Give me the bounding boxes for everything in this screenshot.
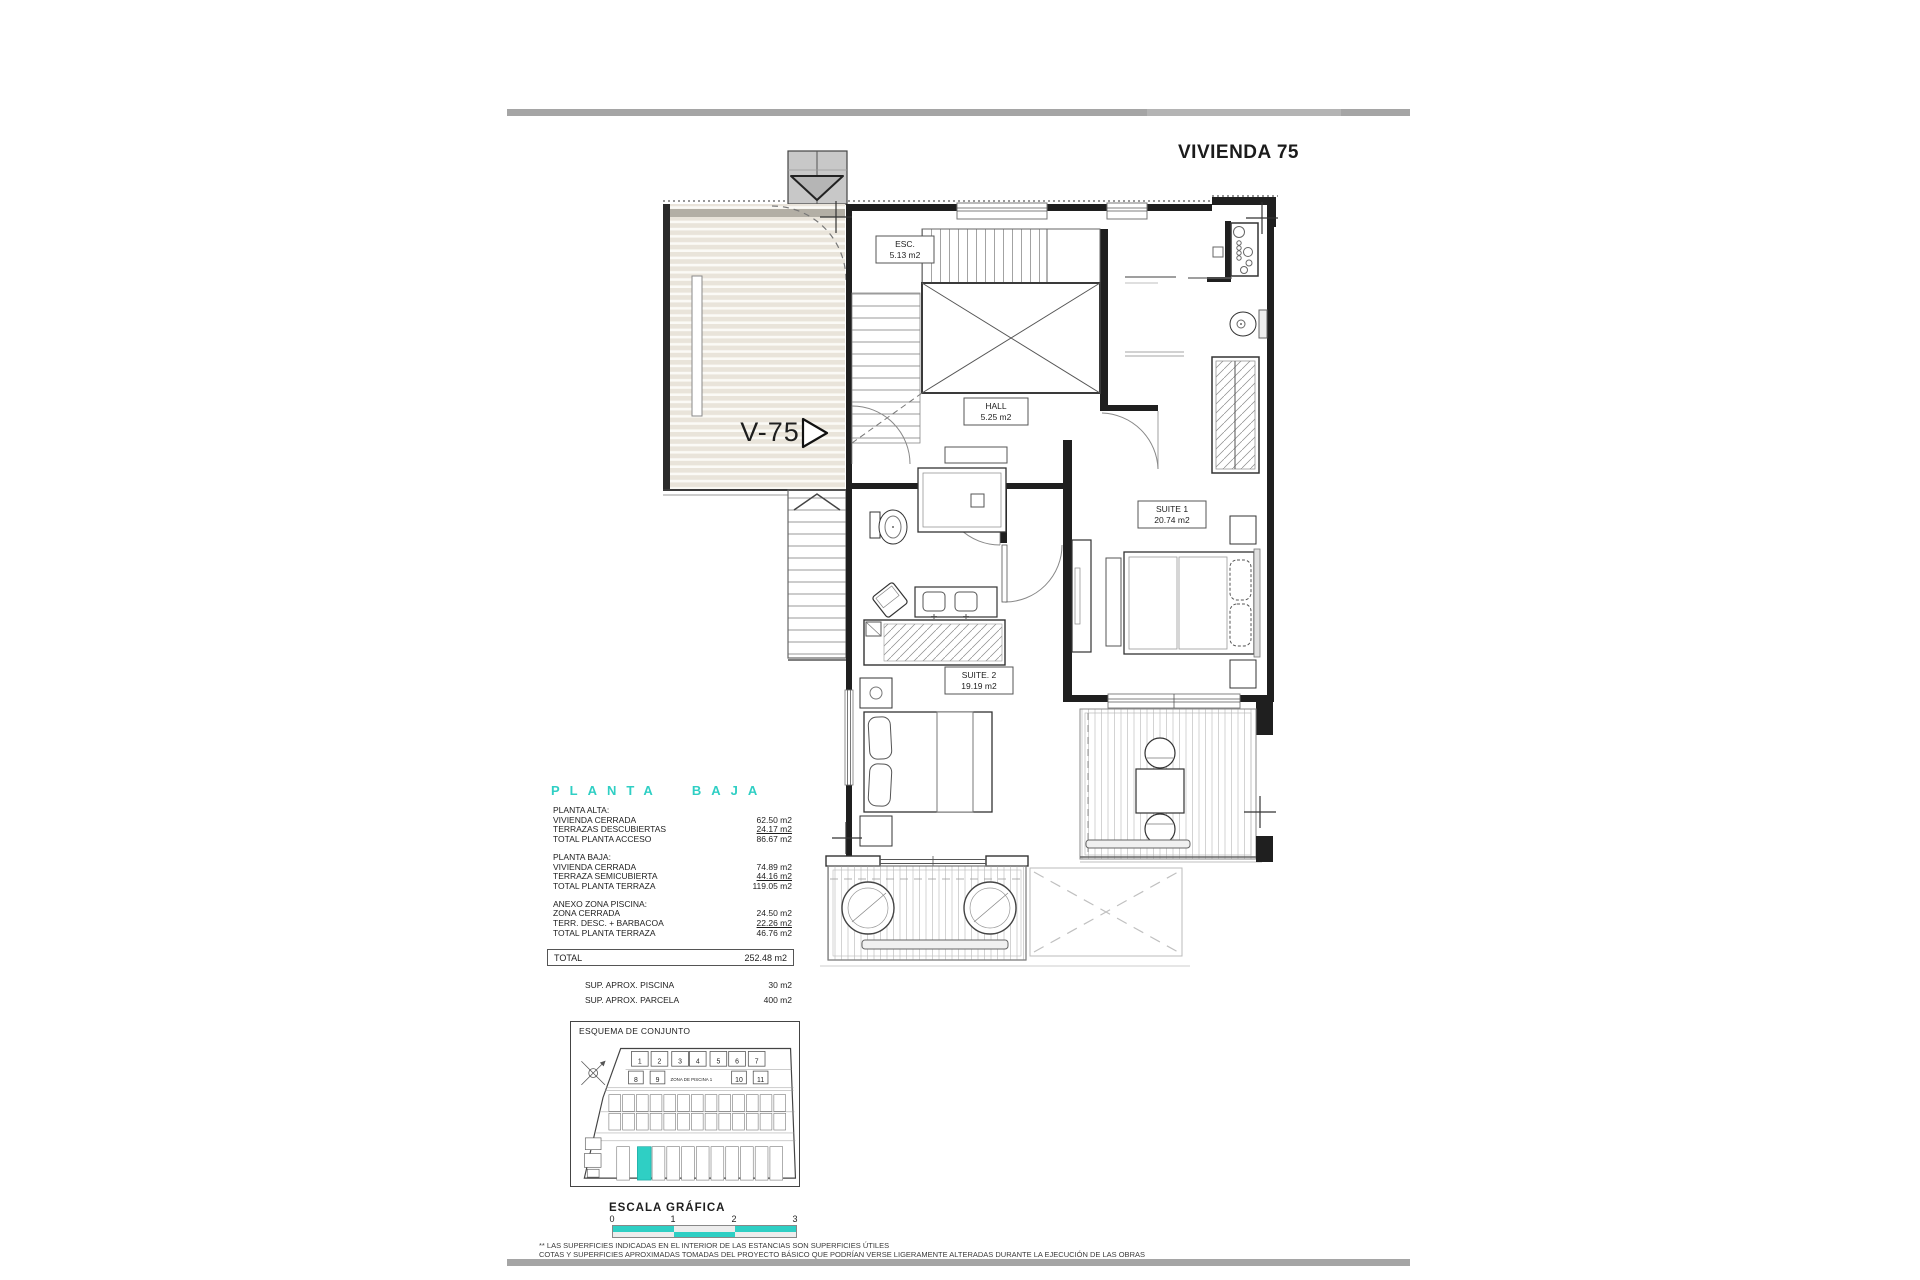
svg-text:8: 8 <box>634 1077 638 1084</box>
footnote-line-1: ** LAS SUPERFICIES INDICADAS EN EL INTER… <box>539 1241 889 1250</box>
svg-text:5: 5 <box>716 1059 720 1066</box>
planter <box>862 940 1008 949</box>
chimney-icon <box>788 151 847 204</box>
room-label-suite2: SUITE. 2 19.19 m2 <box>945 667 1013 694</box>
bench <box>1106 558 1121 646</box>
scale-title: ESCALA GRÁFICA <box>609 1202 725 1214</box>
row-value: 46.76 m2 <box>757 929 792 939</box>
svg-text:5.13 m2: 5.13 m2 <box>890 250 921 260</box>
toilet <box>870 510 907 544</box>
svg-text:9: 9 <box>656 1077 660 1084</box>
svg-text:19.19 m2: 19.19 m2 <box>961 681 997 691</box>
suite1-furniture <box>1072 516 1260 688</box>
window-suite2-left <box>845 690 853 785</box>
row-value: 400 m2 <box>764 995 792 1005</box>
total-value: 252.48 m2 <box>744 953 787 963</box>
svg-text:1: 1 <box>638 1059 642 1066</box>
window-top-2 <box>1107 203 1147 219</box>
sup-parcela-row: SUP. APROX. PARCELA 400 m2 <box>553 995 792 1005</box>
site-plan-title: ESQUEMA DE CONJUNTO <box>579 1026 690 1036</box>
outdoor-chair <box>1145 738 1175 768</box>
row-value: 86.67 m2 <box>757 835 792 845</box>
outdoor-table <box>1136 769 1184 813</box>
site-plan-drawing: 1 2 3 4 5 6 7 8 9 10 11 ZONA DE PISCINA … <box>571 1022 798 1185</box>
nightstand <box>1230 516 1256 544</box>
entrance-terrace: V-75 <box>663 204 846 495</box>
svg-text:2: 2 <box>658 1059 662 1066</box>
nightstand <box>1230 660 1256 688</box>
row-label: SUP. APROX. PISCINA <box>585 980 674 990</box>
bidet <box>1230 310 1267 338</box>
drawing-sheet: VIVIENDA 75 <box>0 0 1920 1280</box>
svg-text:20.74 m2: 20.74 m2 <box>1154 515 1190 525</box>
scale-tick: 2 <box>731 1214 736 1224</box>
area-group-planta-alta: PLANTA ALTA: VIVIENDA CERRADA62.50 m2 TE… <box>553 806 792 845</box>
room-label-suite1: SUITE 1 20.74 m2 <box>1138 501 1206 528</box>
lounge-chair <box>842 882 894 934</box>
unit-label: V-75 <box>740 417 800 447</box>
armchair <box>872 582 908 618</box>
svg-text:ESC.: ESC. <box>895 239 915 249</box>
row-value: 119.05 m2 <box>752 882 792 892</box>
pool-zone-label: ZONA DE PISCINA 1 <box>671 1077 713 1082</box>
hall-sideboard <box>945 447 1007 463</box>
total-label: TOTAL <box>554 953 582 963</box>
scale-tick: 0 <box>609 1214 614 1224</box>
row-label: SUP. APROX. PARCELA <box>585 995 679 1005</box>
site-houses-bottom-row <box>617 1147 783 1180</box>
room-label-esc: ESC. 5.13 m2 <box>876 236 934 263</box>
highlighted-unit <box>637 1147 651 1180</box>
svg-text:SUITE 1: SUITE 1 <box>1156 504 1188 514</box>
svg-text:6: 6 <box>735 1059 739 1066</box>
exterior-stair <box>788 490 846 660</box>
room-label-hall: HALL 5.25 m2 <box>964 398 1028 425</box>
sup-piscina-row: SUP. APROX. PISCINA 30 m2 <box>553 980 792 990</box>
compass-icon <box>581 1061 605 1085</box>
svg-text:SUITE. 2: SUITE. 2 <box>962 670 997 680</box>
vanity-double-sink <box>912 587 999 621</box>
svg-text:10: 10 <box>735 1077 743 1084</box>
area-group-anexo-piscina: ANEXO ZONA PISCINA: ZONA CERRADA24.50 m2… <box>553 900 792 939</box>
row-label: TOTAL PLANTA ACCESO <box>553 835 651 845</box>
roof-edge-line <box>663 196 1278 201</box>
bed-suite2 <box>864 712 992 812</box>
site-plan-inset: ESQUEMA DE CONJUNTO <box>570 1021 800 1187</box>
window-top-1 <box>957 203 1047 219</box>
terrace-column <box>692 276 702 416</box>
planter <box>1086 840 1190 848</box>
scale-tick: 3 <box>792 1214 797 1224</box>
suite2-furniture <box>860 678 992 846</box>
area-table: PLANTA ALTA: VIVIENDA CERRADA62.50 m2 TE… <box>553 806 792 946</box>
scale-bar <box>612 1225 797 1238</box>
table-row: TOTAL PLANTA TERRAZA119.05 m2 <box>553 882 792 892</box>
wardrobe-suite2 <box>864 620 1005 665</box>
footnote-line-2: COTAS Y SUPERFICIES APROXIMADAS TOMADAS … <box>539 1250 1145 1259</box>
shower <box>918 468 1006 532</box>
nightstand <box>860 816 892 846</box>
svg-text:11: 11 <box>757 1077 764 1084</box>
svg-text:3: 3 <box>678 1059 682 1066</box>
nightstand <box>860 678 892 708</box>
table-row: TOTAL PLANTA ACCESO86.67 m2 <box>553 835 792 845</box>
wall-niche <box>1213 247 1223 257</box>
patio-crosshatch <box>1030 868 1182 956</box>
plan-heading: PLANTA BAJA <box>551 783 767 798</box>
total-row: TOTAL 252.48 m2 <box>547 949 794 966</box>
sink-cabinet <box>1231 223 1258 276</box>
row-value: 30 m2 <box>768 980 792 990</box>
svg-text:5.25 m2: 5.25 m2 <box>981 412 1012 422</box>
window-suite1-bottom <box>1108 694 1240 708</box>
scale-tick: 1 <box>670 1214 675 1224</box>
svg-text:4: 4 <box>696 1059 700 1066</box>
row-label: TOTAL PLANTA TERRAZA <box>553 929 656 939</box>
bed-suite1 <box>1124 549 1260 657</box>
table-row: TOTAL PLANTA TERRAZA46.76 m2 <box>553 929 792 939</box>
bathroom-suite2 <box>864 468 1006 665</box>
row-label: TOTAL PLANTA TERRAZA <box>553 882 656 892</box>
deck-suite1 <box>1080 709 1273 862</box>
lounge-chair <box>964 882 1016 934</box>
bottom-rule <box>507 1259 1410 1266</box>
window-suite2-bottom <box>826 856 1028 866</box>
wardrobe-suite1 <box>1212 357 1259 473</box>
svg-text:HALL: HALL <box>985 401 1007 411</box>
area-group-planta-baja: PLANTA BAJA: VIVIENDA CERRADA74.89 m2 TE… <box>553 853 792 892</box>
svg-text:7: 7 <box>755 1059 759 1066</box>
